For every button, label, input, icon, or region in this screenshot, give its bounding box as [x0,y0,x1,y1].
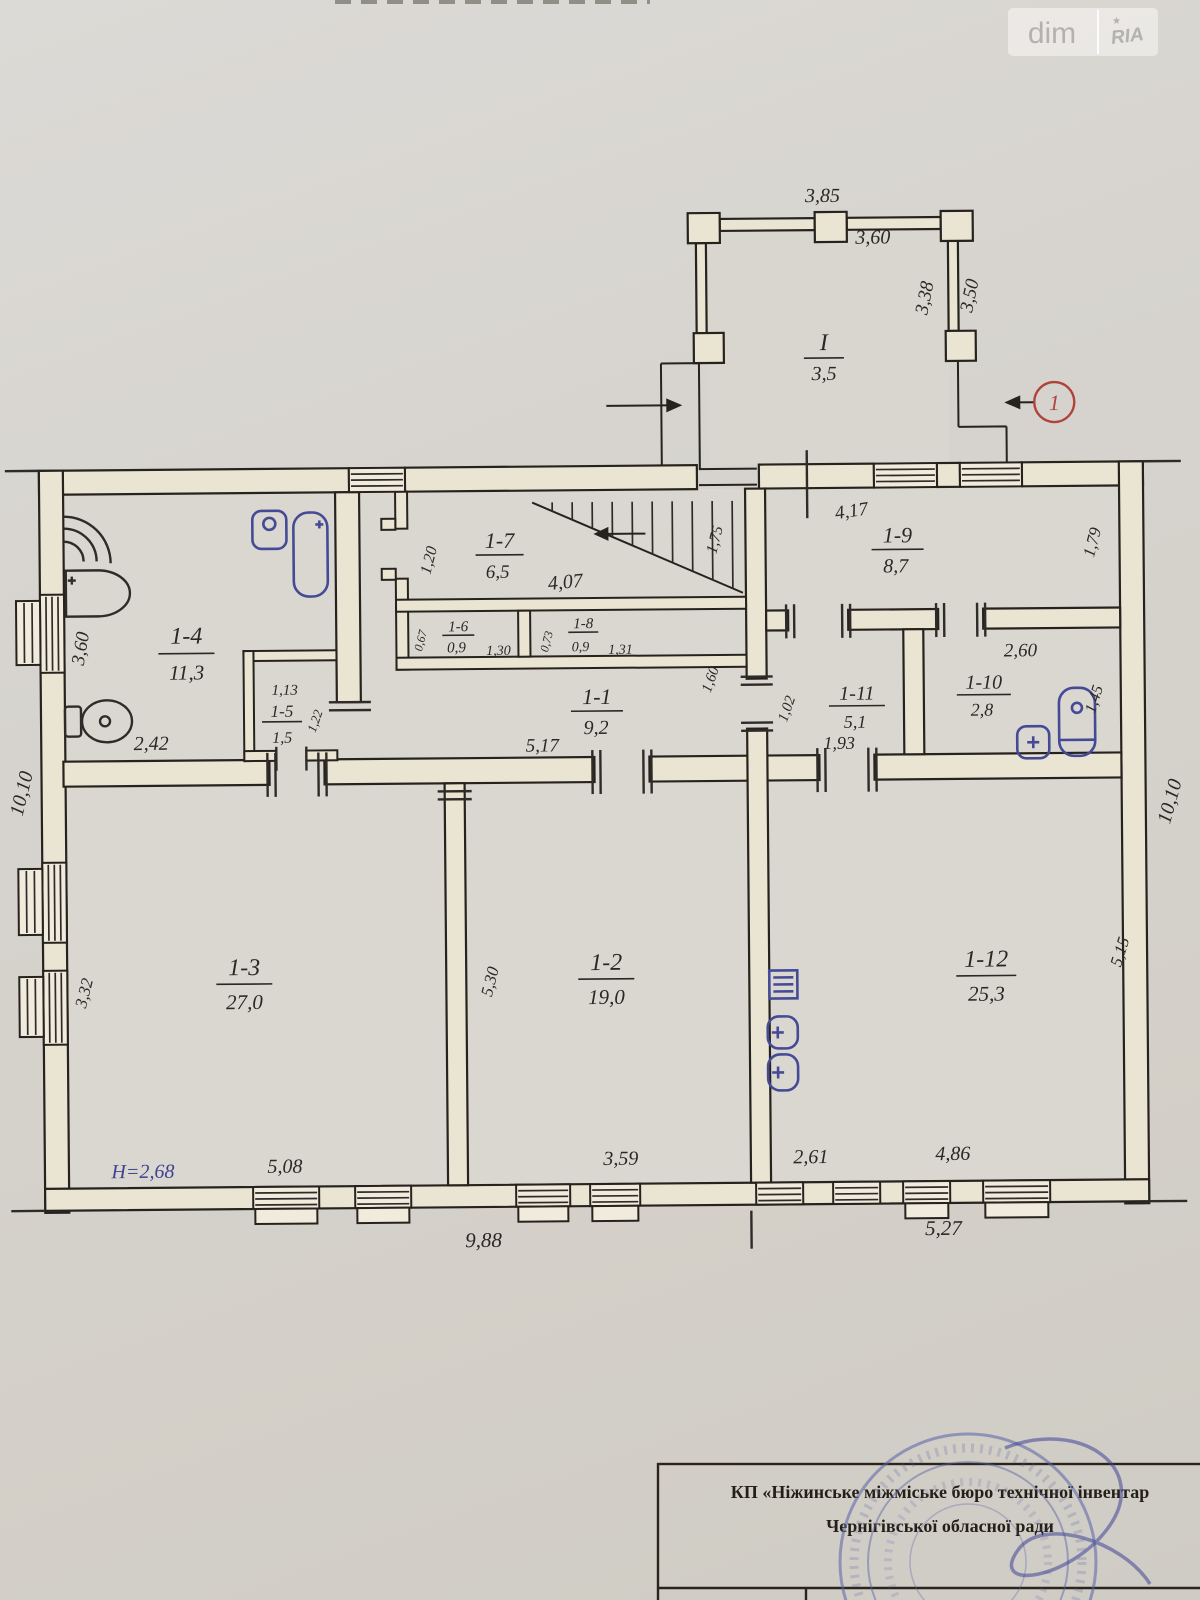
closet-divider [518,611,530,657]
dim-1-7-bottom: 4,07 [547,570,585,595]
footer-table-dividers [658,1588,1200,1600]
room-1-11-area: 5,1 [844,712,867,732]
entrance-marker-number: 1 [1049,390,1060,415]
wall-1-9-bottom [983,607,1120,628]
watermark: dim RIA ★ [1008,8,1158,56]
dim-porch-inner: 3,60 [854,226,890,248]
plan: 3,85 3,60 3,38 3,50 І 3,5 1 1-4 11,3 3,6… [0,182,1190,1256]
scanned-floor-plan-page: { "watermark": { "dim": "dim", "ria": "R… [0,0,1200,1600]
room-1-6-area: 0,9 [447,640,466,656]
porch-column [815,212,847,242]
porch-column [688,213,720,243]
footer-table: КП «Ніжинське міжміське бюро технічної і… [658,1464,1200,1600]
dim-1-3-bottom: 5,08 [267,1156,302,1178]
room-1-2-area: 19,0 [588,985,625,1009]
window-sill [19,977,44,1037]
room-1-1-area: 9,2 [584,717,609,739]
room-1-12-label: 1-12 [964,946,1008,972]
wall-top [405,465,697,492]
closet-1-5-bottom [244,751,276,761]
room-1-12-underline [956,975,1016,976]
stair-door-jamb [382,569,396,580]
stair-left-wall [396,579,409,670]
entry-arrow-right-head [1004,395,1020,409]
window-sill [985,1202,1048,1218]
wall-mid-horizontal [324,757,594,784]
closet-1-5-left [243,651,254,761]
dim-porch-top: 3,85 [804,185,840,207]
ceiling-height-note: Н=2,68 [110,1161,174,1184]
porch-column [694,333,724,363]
dim-1-10-top: 2,60 [1004,640,1038,661]
wall-1-3-1-2 [445,783,469,1185]
window-sill [357,1208,409,1223]
dim-outer-right: 10,10 [1153,777,1186,826]
room-1-10-label: 1-10 [965,671,1002,693]
wall-mid-horizontal [63,760,269,787]
floor-plan-drawing: 3,85 3,60 3,38 3,50 І 3,5 1 1-4 11,3 3,6… [0,0,1200,1600]
room-1-5-label: 1-5 [271,702,294,721]
watermark-dim-logo: dim [1028,17,1076,50]
porch-left-wall [696,243,707,333]
dim-1-5-top: 1,13 [272,683,298,699]
window-sill [16,601,41,665]
dim-1-11-bottom: 1,93 [823,733,855,753]
building-interior [63,485,1125,1188]
room-1-1-label: 1-1 [582,684,612,709]
wall-spine-lower [747,729,771,1183]
porch-column [941,211,973,241]
room-1-3-area: 27,0 [226,990,263,1014]
porch-label: І [819,330,829,356]
room-1-8-label: 1-8 [573,616,594,632]
porch-entry-right [958,360,1007,466]
dim-1-1-bottom: 5,17 [526,735,561,756]
window-sill [518,1206,568,1221]
room-1-4-area: 11,3 [169,660,204,684]
room-1-4-label: 1-4 [170,623,202,649]
porch-right-wall [948,241,959,331]
dim-outer-bottom-b: 5,27 [925,1216,963,1240]
porch-top-wall [720,218,815,231]
wall-1-9-bottom [848,609,938,630]
window-sill [592,1206,638,1221]
room-1-7-area: 6,5 [486,562,510,583]
stair-door-jamb [381,519,395,530]
closet-1-5-top [243,650,336,661]
footer-org-line1: КП «Ніжинське міжміське бюро технічної і… [731,1482,1149,1502]
dim-1-6-bottom: 1,30 [486,644,511,659]
wall-mid-horizontal [649,755,819,781]
wall-1-11-1-10 [903,629,924,754]
room-1-9-area: 8,7 [883,555,909,577]
porch-column [946,331,976,361]
room-1-6-label: 1-6 [448,619,469,635]
room-1-5-area: 1,5 [272,730,292,747]
wall-top [39,468,349,495]
wall-top-pier [937,463,960,487]
ria-star-icon: ★ [1112,16,1121,27]
wall-spine-upper [745,489,767,679]
room-1-11-label: 1-11 [839,683,874,705]
porch-entry-left [661,363,700,469]
closet-1-5-bottom [306,750,337,760]
dim-1-4-bottom: 2,42 [134,733,169,755]
dim-porch-right-b: 3,50 [956,277,984,315]
entry-arrow-left-head [666,398,682,412]
dim-outer-bottom-a: 9,88 [465,1228,502,1252]
room-1-8-area: 0,9 [572,640,590,655]
stair-left-wall [395,492,407,529]
dimension-tick [807,450,808,518]
room-1-10-area: 2,8 [971,700,994,720]
room-1-2-label: 1-2 [590,950,622,976]
window-sill [255,1208,317,1224]
dim-1-12-bottom-b: 4,86 [935,1143,970,1165]
wall-top [759,464,874,489]
wall-1-4-corridor [335,492,361,702]
dim-outer-left: 10,10 [6,769,38,818]
room-1-3-label: 1-3 [228,955,260,981]
room-1-9-label: 1-9 [883,522,913,547]
wall-right [1119,461,1149,1203]
room-1-7-label: 1-7 [485,528,516,553]
watermark-ria-logo: RIA [1110,24,1145,49]
closet-bottom-wall [396,655,746,670]
porch-interior [707,229,950,465]
dim-1-12-bottom-a: 2,61 [793,1146,828,1168]
room-1-12-area: 25,3 [968,981,1005,1005]
porch-door-threshold [699,469,757,486]
porch-area: 3,5 [810,363,836,385]
dim-1-2-bottom: 3,59 [602,1148,638,1170]
window-sill [18,869,43,935]
stair-mid-wall [396,597,746,612]
dim-1-8-bottom: 1,31 [608,643,633,658]
